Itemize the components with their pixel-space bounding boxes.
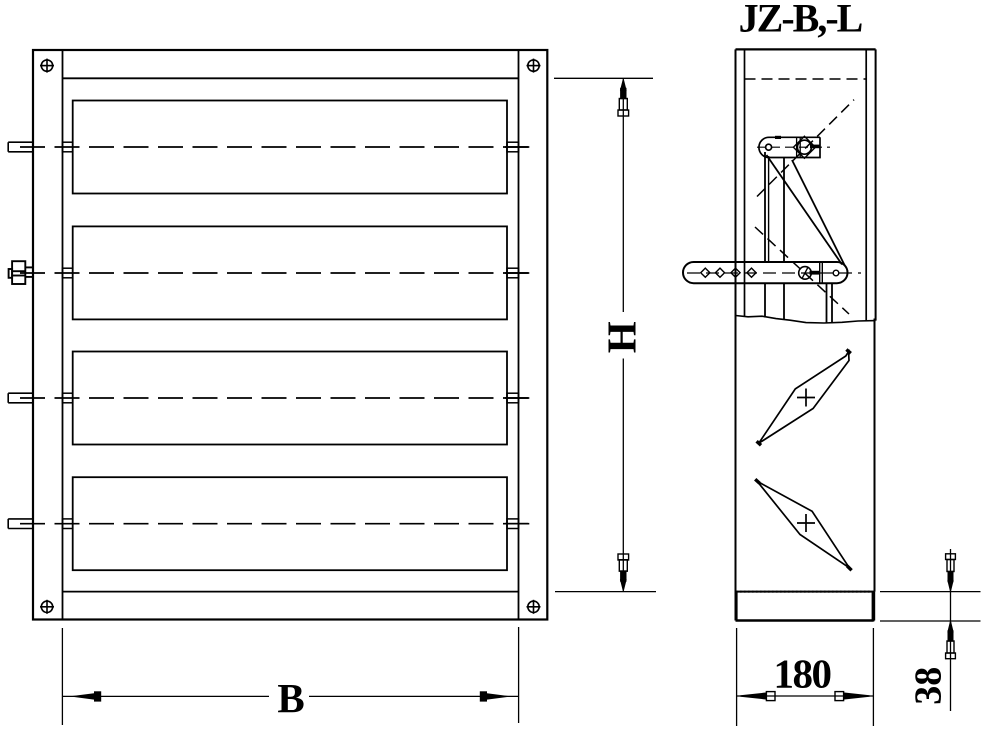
svg-text:B: B [277, 675, 304, 721]
svg-text:38: 38 [908, 667, 950, 705]
svg-text:JZ-B,-L: JZ-B,-L [739, 0, 862, 41]
svg-text:180: 180 [774, 651, 831, 697]
svg-text:H: H [599, 321, 645, 353]
